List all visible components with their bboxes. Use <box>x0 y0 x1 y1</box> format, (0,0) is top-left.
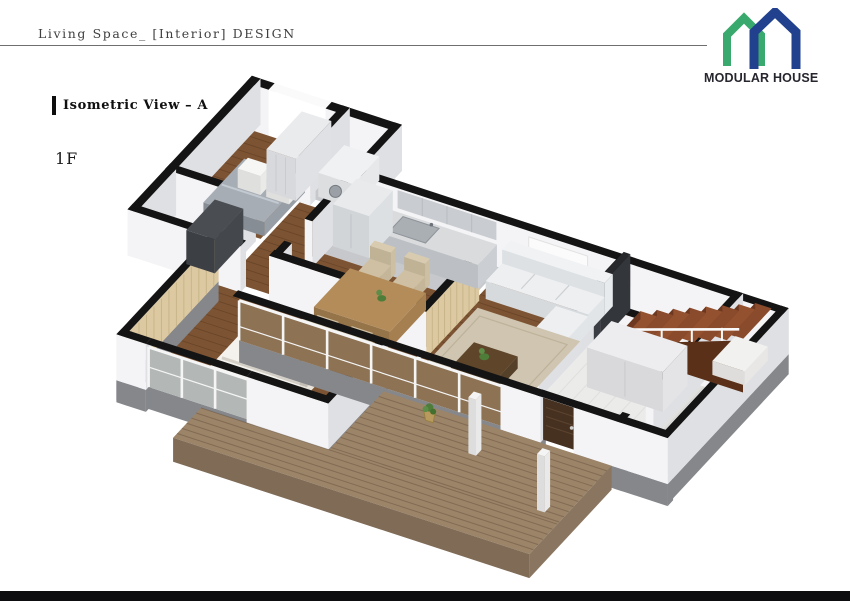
isometric-floor-plan <box>0 0 850 601</box>
footer-bar <box>0 591 850 601</box>
slide: Living Space_ [Interior] DESIGN MODULAR … <box>0 0 850 601</box>
